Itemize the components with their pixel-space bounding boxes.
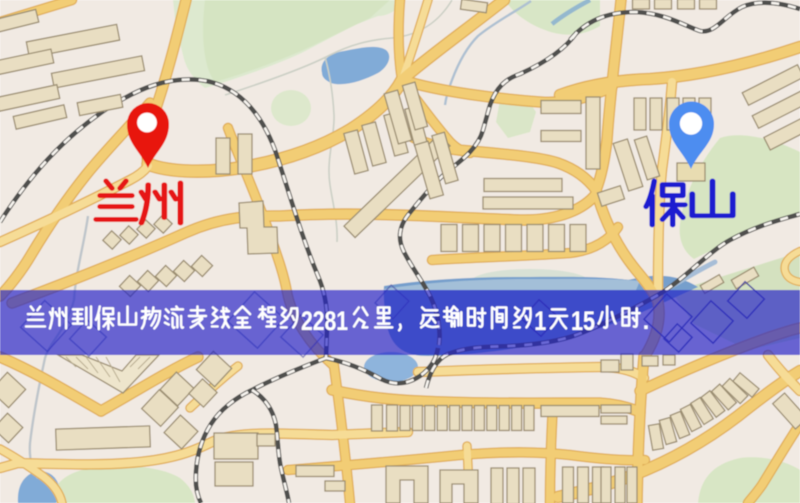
svg-text:.: . (643, 308, 650, 335)
svg-text:2281: 2281 (301, 306, 348, 336)
svg-text:1: 1 (534, 306, 546, 336)
svg-text:15: 15 (571, 306, 595, 336)
